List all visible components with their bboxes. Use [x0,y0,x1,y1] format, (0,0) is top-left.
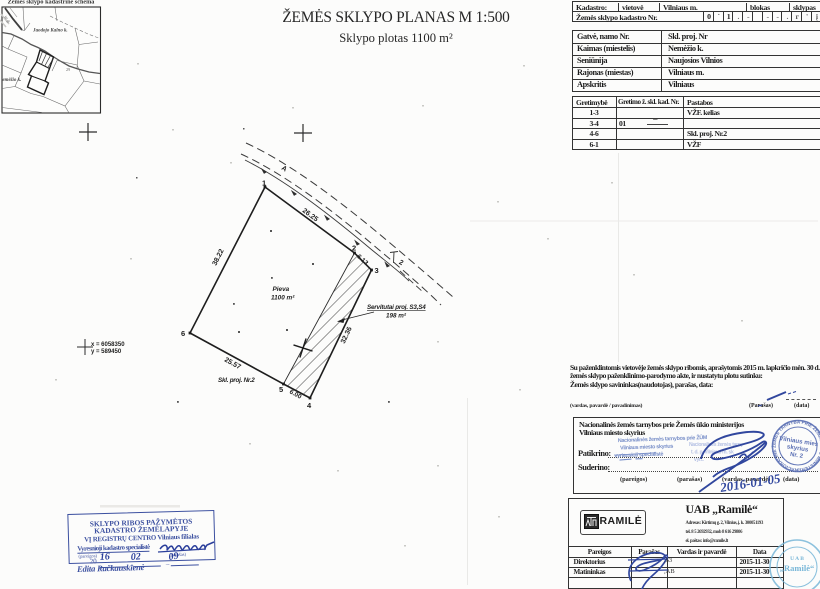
svg-text:U A B: U A B [790,556,804,562]
svg-text:„Ramilė“: „Ramilė“ [780,563,814,573]
svg-text:vyr...: vyr... [694,457,705,463]
svg-text:16: 16 [99,551,110,563]
svg-text:,AB: ,AB [664,568,675,575]
svg-text:02: 02 [130,551,141,563]
svg-text:,63: ,63 [664,557,672,564]
svg-text:09: 09 [168,551,179,563]
svg-text:Nr. 2: Nr. 2 [790,452,804,460]
svg-text:Vilniaus miesto skyrius: Vilniaus miesto skyrius [620,444,673,452]
svg-text:2016-01-05: 2016-01-05 [718,471,782,496]
svg-text:NACIONALINĖ ŽEMĖS TARNYBA PRIE: NACIONALINĖ ŽEMĖS TARNYBA PRIE ŽEMĖS ŪKI… [0,0,820,473]
